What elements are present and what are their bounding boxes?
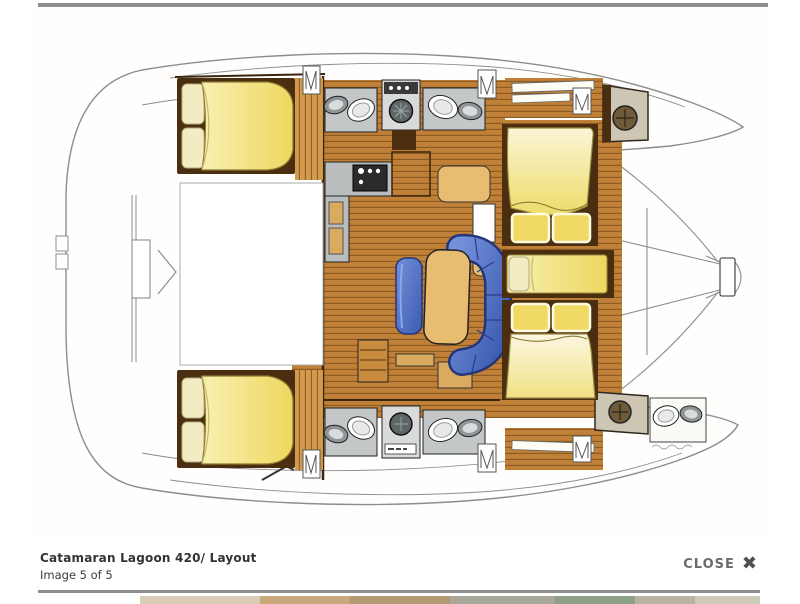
double-bed: [506, 334, 595, 398]
pillow: [512, 304, 549, 331]
sliver-segment: [140, 596, 260, 604]
gallery-image: [30, 10, 770, 540]
catamaran-layout-drawing: [30, 10, 770, 540]
double-bed: [507, 128, 593, 215]
port-heads: [322, 80, 485, 132]
sliver-segment: [350, 596, 450, 604]
caption-counter: Image 5 of 5: [40, 568, 257, 582]
hatch-ladder-icon: [303, 450, 320, 478]
cabinet-door: [329, 202, 343, 224]
sliver-segment: [260, 596, 350, 604]
sliver-segment: [695, 596, 760, 604]
galley-island: [392, 152, 430, 196]
pillow: [182, 128, 204, 168]
double-bed: [202, 82, 293, 170]
forward-cabins: [502, 124, 614, 400]
starboard-aft-cabin: [177, 370, 323, 470]
hatch-ladder-icon: [478, 444, 496, 472]
caption-title: Catamaran Lagoon 420/ Layout: [40, 551, 257, 565]
hatch-ladder-icon: [303, 66, 320, 94]
sliver-segment: [635, 596, 695, 604]
image-caption: Catamaran Lagoon 420/ Layout Image 5 of …: [40, 551, 257, 582]
transom-details: [56, 195, 176, 362]
hatch-ladder-icon: [573, 436, 591, 462]
cockpit-area: [180, 183, 323, 365]
bowsprit-anchor-roller: [720, 258, 735, 296]
pillow: [553, 214, 590, 242]
hatch-ladder-icon: [573, 88, 591, 114]
close-button-label: CLOSE: [683, 557, 735, 572]
top-divider-rule: [38, 3, 768, 7]
pillow: [182, 378, 204, 418]
forward-crew-head: [650, 398, 706, 449]
double-bed: [202, 376, 293, 464]
sliver-segment: [555, 596, 635, 604]
pillow: [182, 422, 204, 462]
stern-cockpit-outline: [66, 70, 142, 488]
hatch-ladder-icon: [478, 70, 496, 98]
companionway-steps: [358, 340, 388, 382]
cabinet-door: [329, 228, 343, 254]
pillow: [509, 257, 529, 291]
pillow: [553, 304, 590, 331]
nav-seatback: [438, 166, 490, 202]
pillow: [512, 214, 549, 242]
close-icon: ✖: [742, 555, 757, 573]
helm-seat-mark: [158, 250, 176, 294]
swim-ladder-step: [56, 254, 68, 269]
pillow: [182, 84, 204, 124]
port-aft-cabin: [177, 78, 323, 180]
close-button[interactable]: CLOSE ✖: [683, 555, 757, 573]
sliver-segment: [450, 596, 555, 604]
starboard-heads: [322, 406, 485, 458]
handwritten-note: [652, 445, 692, 449]
cabin-window: [512, 93, 570, 103]
bottom-divider-rule: [38, 590, 760, 593]
low-cabinet: [396, 354, 434, 366]
swim-ladder-step: [56, 236, 68, 251]
next-content-sliver: [140, 596, 760, 604]
dinette-table: [423, 249, 470, 344]
